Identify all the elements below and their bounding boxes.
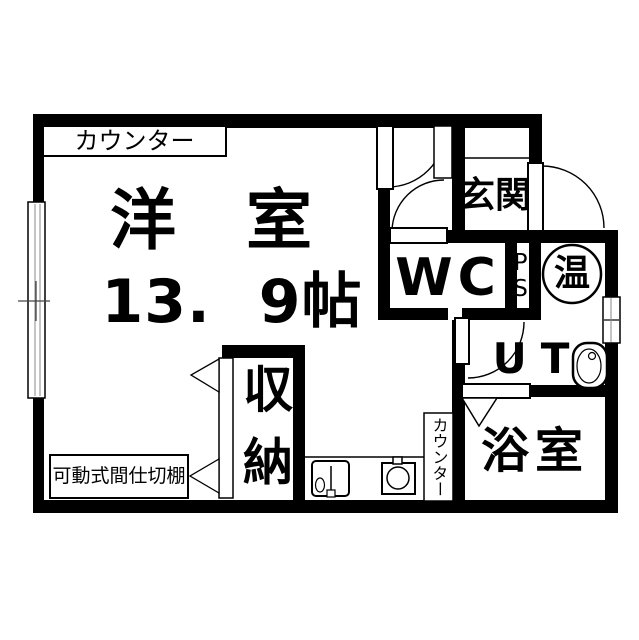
wc-door-leaf xyxy=(390,228,447,243)
entrance-door-arc xyxy=(542,166,604,228)
bath-door-swing-triangle xyxy=(462,398,497,426)
partition-arrow-top xyxy=(191,359,219,392)
wall-entrance-right-upper xyxy=(529,114,542,165)
ut-label: UT xyxy=(488,336,588,382)
partition-bar xyxy=(219,358,233,498)
bath-door-leaf xyxy=(462,384,530,398)
wall-storage-right xyxy=(293,345,305,513)
entrance-label: 玄関 xyxy=(455,176,535,216)
wall-wc-bottom-right xyxy=(462,308,537,320)
wall-bottom xyxy=(33,500,618,513)
counter-top-label: カウンター xyxy=(42,125,227,157)
wall-storage-top xyxy=(222,345,305,358)
shoe-cabinet xyxy=(434,126,452,178)
movable-partition-label: 可動式間仕切棚 xyxy=(49,454,189,499)
partition-arrow-bottom xyxy=(190,459,219,493)
wall-left-lower xyxy=(33,396,44,513)
wc-label: WC xyxy=(392,250,504,306)
wash-basin-faucet xyxy=(589,353,596,360)
western-room-label: 洋 室 xyxy=(90,183,334,259)
kitchen-faucet-base xyxy=(327,490,335,497)
storage-label: 収納 xyxy=(238,367,290,503)
ps-label: PS xyxy=(507,246,533,306)
bathroom-label: 浴室 xyxy=(470,425,600,477)
wall-wc-bottom-left xyxy=(378,308,448,320)
wc-door-arc xyxy=(392,180,444,231)
hall-door-leaf xyxy=(377,126,393,189)
wall-hall-vertical xyxy=(378,188,390,320)
kitchen-counter-label: カウンター xyxy=(425,414,452,500)
floorplan: カウンター 洋 室 13. 9帖 玄関 WC PS 温 UT 浴室 収納 カウン… xyxy=(0,0,639,640)
western-room-size: 13. 9帖 xyxy=(96,263,368,341)
water-heater-label: 温 xyxy=(548,253,596,295)
stove-knob xyxy=(393,457,402,464)
ut-door-leaf xyxy=(455,318,469,364)
